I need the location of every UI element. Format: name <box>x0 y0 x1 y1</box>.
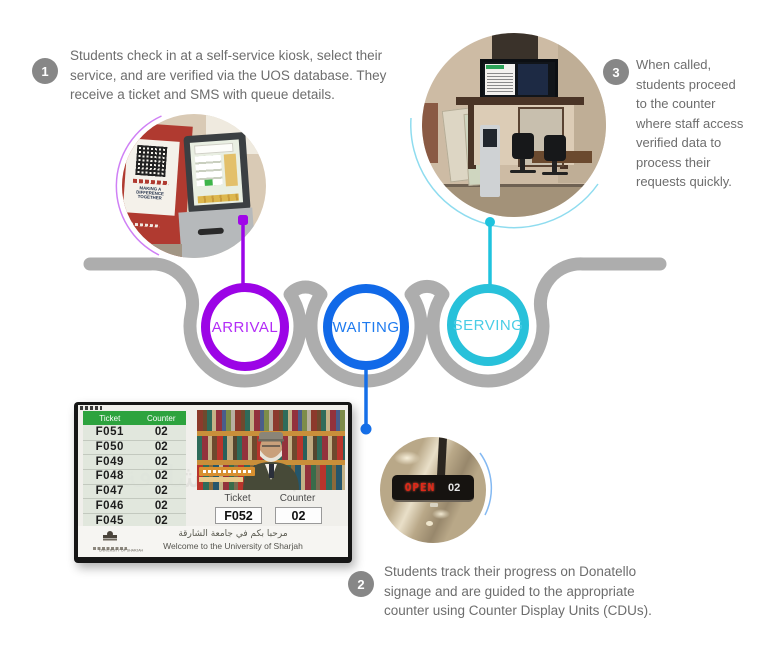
ceiling-spot <box>426 521 433 526</box>
ceiling-display-header <box>486 65 504 69</box>
table-row: F04902 <box>83 454 186 470</box>
cdu-label-tag <box>430 503 438 507</box>
booth-kiosk-screen <box>483 129 497 147</box>
table-row: F04602 <box>83 499 186 515</box>
queue-table: Ticket Counter F05102 F05002 F04902 F048… <box>83 411 186 528</box>
step-1-text: Students check in at a self-service kios… <box>70 46 452 105</box>
table-row: F05002 <box>83 440 186 456</box>
ceiling-light <box>432 509 450 519</box>
university-logo: UNIVERSITY OF SHARJAH <box>88 528 132 555</box>
kiosk-photo-floor <box>122 244 182 258</box>
stage-ring-waiting: WAITING <box>323 284 409 370</box>
current-counter-label: Counter <box>275 493 320 504</box>
banner-website-line <box>122 222 160 228</box>
ceiling-display-media-panel <box>518 64 548 95</box>
step-3-number: 3 <box>612 65 619 80</box>
stage-label-serving: SERVING <box>453 317 524 334</box>
step-1-badge: 1 <box>32 58 58 84</box>
kiosk-ui-side-panel <box>224 154 238 187</box>
table-row: F04802 <box>83 469 186 485</box>
signage-screen: جامعة الشارقة Ticket Counter F05102 F050… <box>78 405 348 557</box>
counter-display-unit: OPEN 02 <box>392 475 474 502</box>
office-chair <box>540 135 570 177</box>
ceiling-light <box>394 451 420 465</box>
ceiling-display-rows <box>487 72 513 92</box>
kiosk-screen <box>183 132 250 214</box>
kiosk-banner-card: MAKING A DIFFERENCE TOGETHER <box>123 138 180 215</box>
kiosk-ui-inputbar <box>194 143 234 155</box>
ceiling-display-queue-panel <box>485 64 515 95</box>
university-emblem-icon <box>101 530 119 541</box>
serving-connector-dot <box>485 217 495 227</box>
step-3-badge: 3 <box>603 59 629 85</box>
qr-code <box>135 145 167 177</box>
video-caption <box>199 467 255 476</box>
current-ticket-value: F052 <box>215 507 262 524</box>
waiting-connector-dot <box>361 424 372 435</box>
logo-caption: UNIVERSITY OF SHARJAH <box>99 549 121 553</box>
kiosk-ui-bottom-band <box>198 194 239 204</box>
donatello-signage-tv: جامعة الشارقة Ticket Counter F05102 F050… <box>74 402 352 563</box>
queue-flow-infographic: MAKING A DIFFERENCE TOGETHER <box>0 0 772 652</box>
step-3-text: When called, students proceed to the cou… <box>636 55 770 192</box>
stage-label-arrival: ARRIVAL <box>212 319 279 336</box>
kiosk-screen-ui <box>190 139 243 205</box>
kiosk-ticket-slot <box>198 228 224 236</box>
banner-arabic-line <box>133 179 169 186</box>
current-ticket-label: Ticket <box>215 493 260 504</box>
signage-footer: UNIVERSITY OF SHARJAH مرحبا بكم في جامعة… <box>78 526 348 557</box>
screen-status-bar <box>80 406 102 410</box>
step-1-number: 1 <box>41 64 48 79</box>
cdu-open-text: OPEN <box>392 481 448 494</box>
video-caption-sub <box>199 477 243 482</box>
kiosk-photo: MAKING A DIFFERENCE TOGETHER <box>122 114 266 258</box>
welcome-english: Welcome to the University of Sharjah <box>138 541 328 551</box>
stage-ring-serving: SERVING <box>447 284 529 366</box>
table-row: F04702 <box>83 484 186 500</box>
kiosk-ui-confirm-key <box>204 179 212 186</box>
queue-table-header: Ticket Counter <box>83 411 186 425</box>
stage-label-waiting: WAITING <box>332 319 399 336</box>
queue-header-counter: Counter <box>137 414 186 423</box>
office-chair <box>508 133 538 175</box>
cdu-counter-number: 02 <box>448 482 474 494</box>
ceiling-mount <box>492 33 538 59</box>
banner-slogan-line2: TOGETHER <box>138 195 162 201</box>
kiosk-body <box>178 207 255 258</box>
stage-ring-arrival: ARRIVAL <box>201 283 289 371</box>
banner-slogan: MAKING A DIFFERENCE TOGETHER <box>135 186 166 201</box>
current-counter-value: 02 <box>275 507 322 524</box>
signage-video <box>197 410 345 490</box>
queue-header-ticket: Ticket <box>83 414 137 423</box>
step-2-text: Students track their progress on Donatel… <box>384 562 724 621</box>
welcome-arabic: مرحبا بكم في جامعة الشارقة <box>138 529 328 539</box>
cdu-photo: OPEN 02 <box>380 437 486 543</box>
counter-photo-floor <box>422 184 606 217</box>
table-row: F05102 <box>83 425 186 441</box>
step-2-number: 2 <box>357 577 364 592</box>
booth-kiosk <box>480 125 500 197</box>
counter-photo-door <box>422 103 438 163</box>
step-2-badge: 2 <box>348 571 374 597</box>
